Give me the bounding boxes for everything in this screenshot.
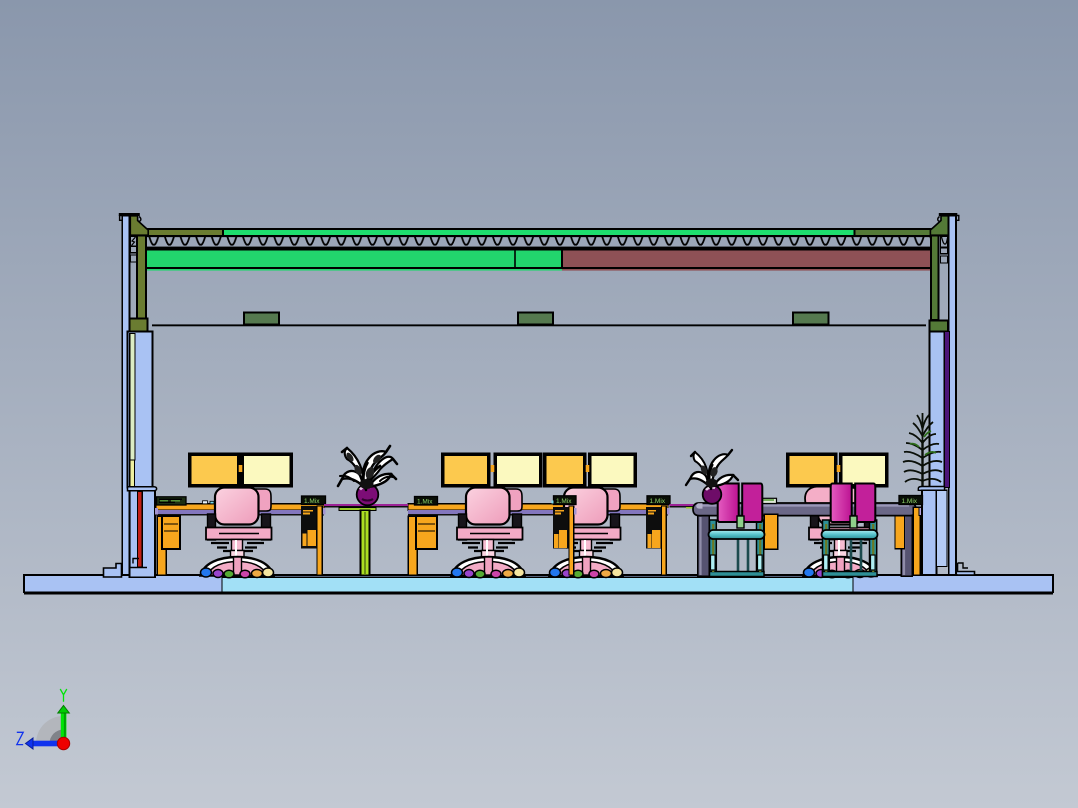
svg-text:1.Mix: 1.Mix: [902, 498, 918, 505]
svg-text:1.Mix: 1.Mix: [650, 498, 666, 505]
svg-text:1.Mix: 1.Mix: [417, 498, 433, 505]
svg-text:1.Mix: 1.Mix: [556, 498, 572, 505]
svg-text:1.Mix: 1.Mix: [304, 498, 320, 505]
